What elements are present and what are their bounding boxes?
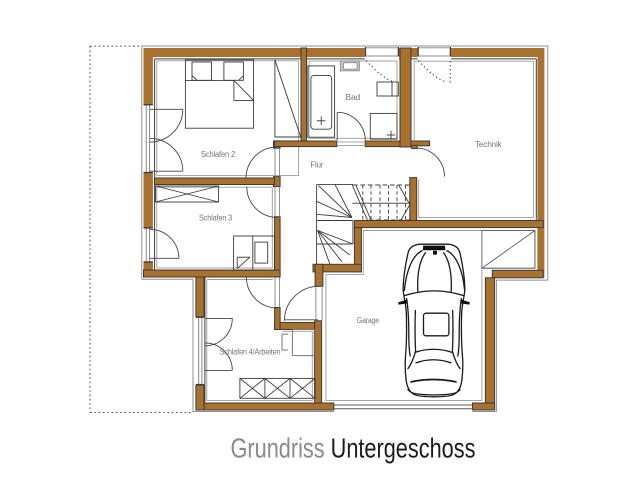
svg-text:Garage: Garage	[357, 316, 380, 325]
svg-text:Schlafen 4/Arbeiten: Schlafen 4/Arbeiten	[220, 348, 281, 357]
svg-text:Grundriss Untergeschoss: Grundriss Untergeschoss	[231, 434, 476, 464]
svg-text:Schlafen 3: Schlafen 3	[199, 213, 233, 222]
svg-text:Flur: Flur	[310, 161, 323, 170]
svg-text:Technik: Technik	[475, 140, 503, 149]
svg-text:Bad: Bad	[346, 93, 361, 102]
svg-text:Schlafen 2: Schlafen 2	[201, 150, 236, 159]
